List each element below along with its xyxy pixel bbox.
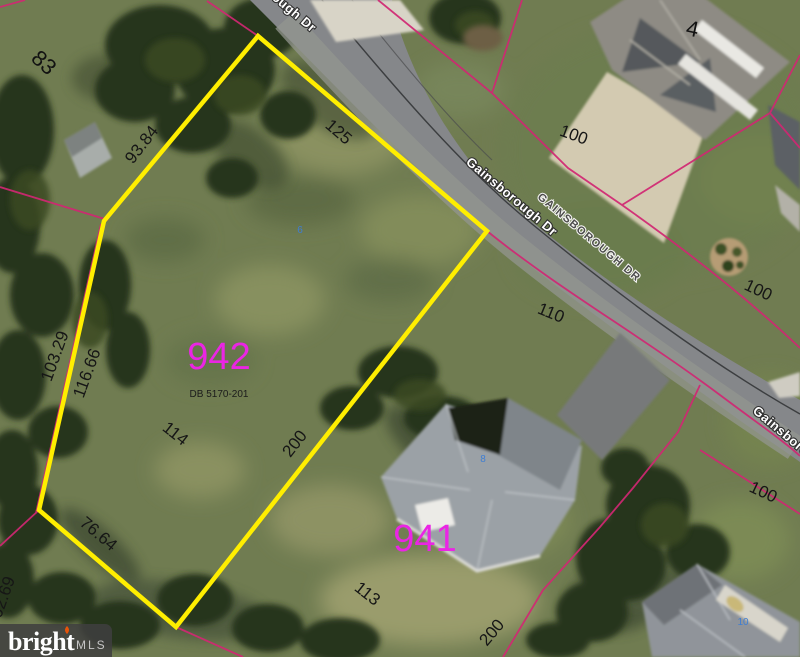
house-number-6: 6 <box>297 225 303 236</box>
map-canvas: 83 93.84 125 103.29 116.66 114 200 76.64… <box>0 0 800 657</box>
watermark: bright MLS <box>0 624 112 657</box>
parcel-number-941: 941 <box>393 518 456 560</box>
deed-reference: DB 5170-201 <box>190 389 249 400</box>
house-number-8: 8 <box>480 454 486 465</box>
watermark-brand: bright <box>8 627 75 656</box>
parcel-number-942: 942 <box>187 336 250 378</box>
landscape-bed <box>710 238 748 276</box>
watermark-mls: MLS <box>76 638 107 652</box>
house-number-10: 10 <box>737 617 749 628</box>
aerial-map: 83 93.84 125 103.29 116.66 114 200 76.64… <box>0 0 800 657</box>
dry-patch <box>463 25 503 51</box>
